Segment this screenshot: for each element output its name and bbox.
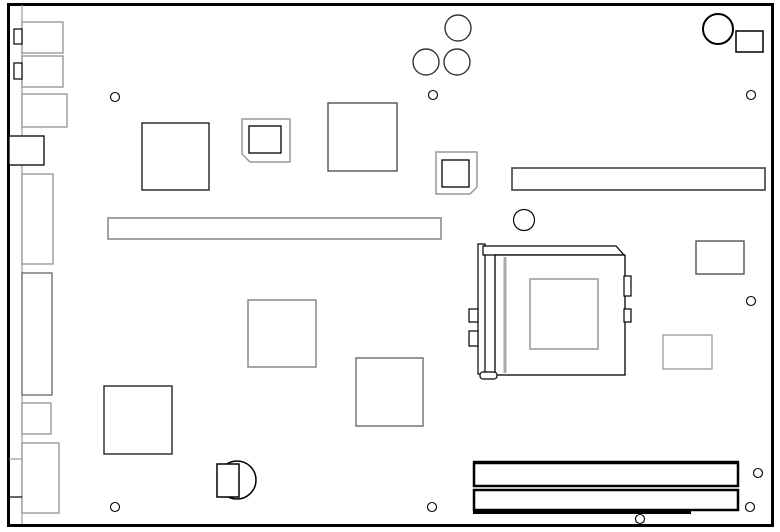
slot-connector-right [512,168,765,190]
chip-1 [142,123,209,190]
chip-3 [248,300,316,367]
io-connector-2 [22,56,63,87]
io-connector-3 [22,94,67,127]
mounting-hole-1 [111,93,120,102]
diagram-canvas [0,0,780,532]
io-connector-1-tab [14,29,22,44]
plcc-socket-1-inner [249,126,281,153]
mounting-hole-3 [747,91,756,100]
cpu-socket-lever-bar [478,244,485,374]
chip-4 [356,358,423,426]
dimm-slot-2 [474,490,738,510]
cpu-tab-right-1 [624,276,631,296]
cpu-lever-foot [480,372,497,379]
mounting-hole-9 [111,503,120,512]
dimm-slot-2-key [473,510,691,514]
io-connector-8 [22,443,59,513]
hole-large [514,210,535,231]
cpu-die [530,279,598,349]
cmos-battery-holder [217,464,239,497]
io-connector-5 [22,174,53,264]
io-connector-4 [9,136,44,165]
slot-connector-left [108,218,441,239]
motherboard-layout-diagram [0,0,780,532]
mounting-hole-5 [754,469,763,478]
chip-5 [104,386,172,454]
mounting-hole-6 [746,503,755,512]
capacitor-2 [413,49,439,75]
dimm-slot-1 [474,463,738,486]
io-connector-1 [22,22,63,53]
mounting-hole-4 [747,297,756,306]
connector-right-1 [696,241,744,274]
capacitor-1 [445,15,471,41]
capacitor-3 [444,49,470,75]
io-connector-7 [22,403,51,434]
cpu-tab-left-2 [469,331,478,346]
corner-connector [736,31,763,52]
mounting-hole-8 [428,503,437,512]
connector-right-2 [663,335,712,369]
io-connector-6 [22,273,52,395]
mounting-hole-2 [429,91,438,100]
cpu-tab-left-1 [469,309,478,322]
corner-circle [703,14,733,44]
plcc-socket-2-inner [442,160,469,187]
mounting-hole-7 [636,515,645,524]
io-connector-2-tab [14,63,22,79]
cpu-socket-top-bar [483,246,624,255]
cpu-tab-right-2 [624,309,631,322]
chip-2 [328,103,397,171]
